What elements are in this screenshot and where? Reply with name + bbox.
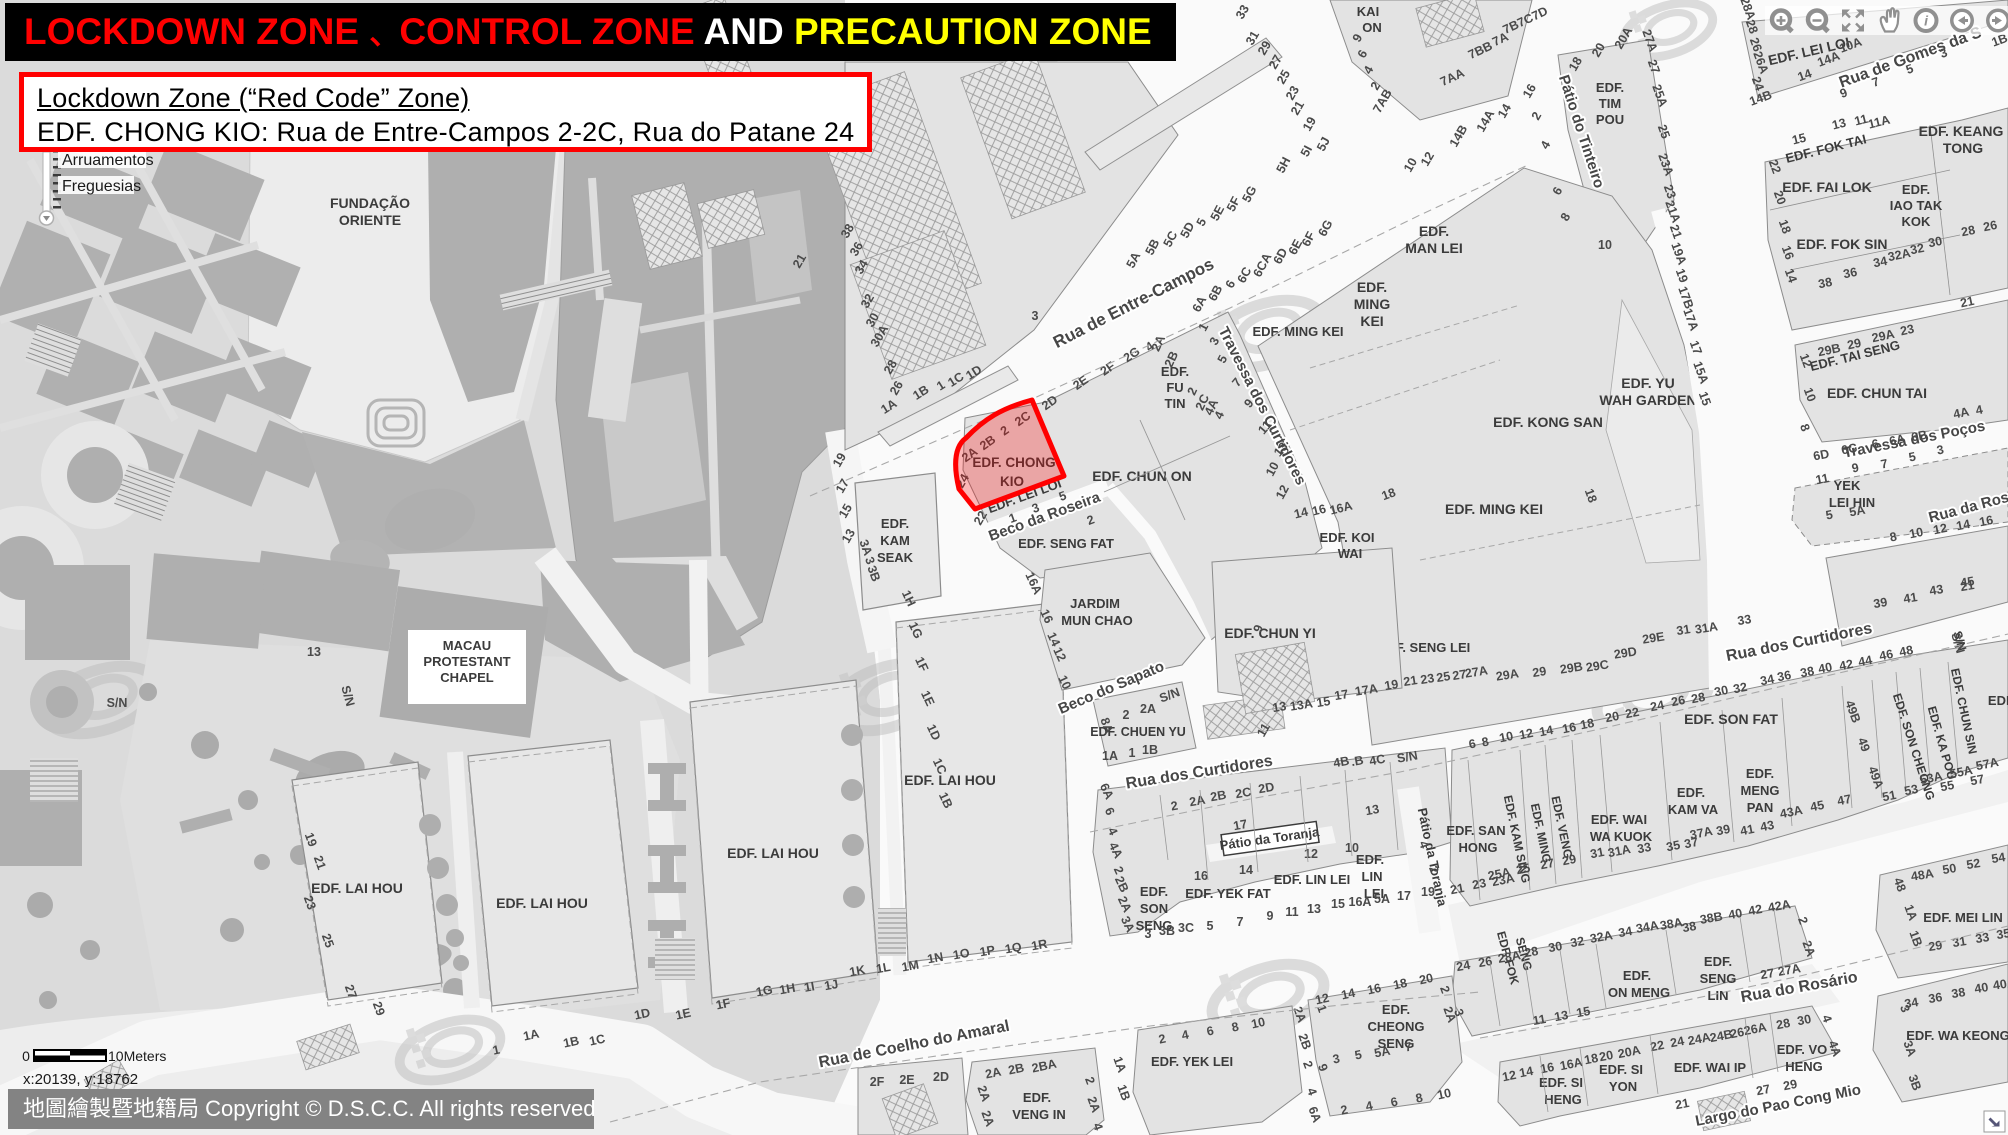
- svg-text:12: 12: [1501, 1068, 1517, 1084]
- svg-text:5: 5: [1207, 919, 1214, 933]
- svg-text:29: 29: [1846, 336, 1863, 353]
- svg-text:41: 41: [1902, 590, 1918, 606]
- svg-text:EDF. MEI LIN: EDF. MEI LIN: [1923, 910, 2002, 925]
- svg-text:10: 10: [1498, 729, 1514, 745]
- svg-text:30: 30: [1796, 1012, 1812, 1028]
- svg-text:2B: 2B: [1209, 788, 1227, 805]
- svg-text:KEI: KEI: [1360, 313, 1383, 329]
- svg-text:TIM: TIM: [1599, 96, 1621, 111]
- svg-text:EDF. KOI: EDF. KOI: [1320, 530, 1375, 545]
- svg-text:1H: 1H: [778, 981, 796, 998]
- svg-text:16: 16: [1561, 720, 1577, 736]
- svg-text:52: 52: [1965, 856, 1981, 872]
- svg-text:YEK: YEK: [1834, 478, 1861, 493]
- svg-text:21: 21: [1449, 881, 1465, 897]
- svg-text:29: 29: [1561, 852, 1577, 868]
- svg-text:30: 30: [1547, 939, 1563, 955]
- svg-text:EDF.: EDF.: [1746, 766, 1774, 781]
- svg-text:14: 14: [1955, 517, 1971, 533]
- svg-text:38: 38: [1681, 919, 1697, 935]
- svg-text:17: 17: [1232, 817, 1248, 833]
- svg-text:19: 19: [1383, 677, 1399, 693]
- svg-text:32: 32: [1732, 680, 1748, 696]
- svg-text:EDF. WA KEONG: EDF. WA KEONG: [1906, 1028, 2008, 1043]
- svg-text:13: 13: [1553, 1008, 1569, 1024]
- svg-text:18: 18: [1579, 716, 1595, 732]
- svg-text:EDF. CHUN YI: EDF. CHUN YI: [1224, 625, 1316, 641]
- svg-text:28: 28: [1690, 690, 1706, 706]
- svg-text:17: 17: [1333, 687, 1349, 703]
- svg-text:24: 24: [1669, 1034, 1685, 1050]
- svg-text:19: 19: [1421, 885, 1435, 899]
- svg-text:EDF. WAI IP: EDF. WAI IP: [1674, 1060, 1747, 1075]
- svg-text:39: 39: [1872, 595, 1888, 611]
- svg-text:EDF. KONG SAN: EDF. KONG SAN: [1493, 414, 1603, 430]
- svg-text:EDF.: EDF.: [1357, 279, 1387, 295]
- svg-text:6D: 6D: [1812, 447, 1830, 464]
- svg-text:14: 14: [1538, 723, 1554, 739]
- svg-text:3C: 3C: [1178, 921, 1194, 935]
- svg-text:ORIENTE: ORIENTE: [339, 212, 401, 228]
- svg-text:PAN: PAN: [1747, 800, 1773, 815]
- svg-text:KAI: KAI: [1357, 4, 1379, 19]
- svg-text:21: 21: [1674, 1096, 1690, 1112]
- svg-text:5A: 5A: [1373, 1044, 1391, 1061]
- svg-text:HENG: HENG: [1544, 1092, 1582, 1107]
- svg-text:EDF. LAI HOU: EDF. LAI HOU: [727, 845, 819, 861]
- svg-text:27: 27: [1759, 966, 1775, 982]
- svg-text:12: 12: [1304, 847, 1318, 861]
- svg-text:1M: 1M: [901, 958, 921, 975]
- svg-text:MENG: MENG: [1741, 783, 1780, 798]
- svg-text:EDF. CHUN TAI: EDF. CHUN TAI: [1827, 385, 1927, 401]
- svg-text:16: 16: [1366, 981, 1383, 998]
- svg-text:6B: 6B: [1910, 428, 1928, 445]
- svg-text:35: 35: [1665, 838, 1681, 854]
- svg-text:36: 36: [1842, 265, 1858, 281]
- svg-text:12: 12: [1518, 726, 1534, 742]
- svg-text:14: 14: [1340, 986, 1357, 1003]
- svg-text:EDF. KEANG: EDF. KEANG: [1919, 123, 2004, 139]
- svg-text:4B: 4B: [1332, 754, 1350, 771]
- svg-text:34: 34: [1759, 672, 1775, 688]
- svg-text:Freguesias: Freguesias: [62, 178, 141, 195]
- svg-text:54: 54: [1990, 850, 2006, 866]
- svg-text:23: 23: [1899, 322, 1916, 339]
- svg-text:EDF. FOK SIN: EDF. FOK SIN: [1796, 236, 1887, 252]
- svg-text:2D: 2D: [933, 1070, 949, 1084]
- svg-text:Arruamentos: Arruamentos: [62, 152, 154, 169]
- svg-text:1J: 1J: [823, 977, 839, 993]
- svg-text:JARDIM: JARDIM: [1070, 596, 1120, 611]
- svg-text:EDF. YEK LEI: EDF. YEK LEI: [1151, 1054, 1233, 1069]
- svg-text:.B: .B: [1350, 753, 1365, 769]
- svg-text:11: 11: [1532, 1012, 1547, 1028]
- svg-text:38: 38: [1950, 985, 1966, 1001]
- svg-text:CHEONG: CHEONG: [1367, 1019, 1424, 1034]
- svg-text:45: 45: [1809, 798, 1825, 814]
- svg-text:27: 27: [1539, 856, 1555, 872]
- svg-text:32: 32: [1909, 241, 1925, 257]
- svg-text:27: 27: [1755, 1082, 1771, 1098]
- svg-text:2D: 2D: [1257, 780, 1275, 797]
- svg-text:EDF. SENG FAT: EDF. SENG FAT: [1018, 536, 1114, 551]
- svg-text:30: 30: [1927, 234, 1943, 250]
- svg-text:10Meters: 10Meters: [108, 1048, 166, 1064]
- svg-text:EDF.: EDF.: [1140, 884, 1168, 899]
- svg-text:40: 40: [1817, 660, 1833, 676]
- svg-text:POU: POU: [1596, 112, 1624, 127]
- svg-text:VENG IN: VENG IN: [1012, 1107, 1065, 1122]
- svg-text:16: 16: [1978, 513, 1994, 529]
- svg-text:WAI: WAI: [1338, 546, 1363, 561]
- svg-text:31: 31: [1589, 845, 1605, 861]
- svg-text:IAO TAK: IAO TAK: [1890, 198, 1943, 213]
- svg-text:MACAU: MACAU: [443, 638, 491, 653]
- svg-text:50: 50: [1941, 861, 1957, 877]
- svg-text:10: 10: [1598, 238, 1612, 252]
- svg-text:16: 16: [1194, 869, 1208, 883]
- svg-text:28: 28: [1775, 1016, 1791, 1032]
- svg-text:4C: 4C: [1368, 752, 1386, 769]
- svg-text:2A: 2A: [1140, 702, 1156, 716]
- svg-text:7: 7: [1237, 915, 1244, 929]
- svg-text:EDF. SI: EDF. SI: [1539, 1075, 1583, 1090]
- svg-text:TONG: TONG: [1943, 140, 1983, 156]
- svg-text:24: 24: [1455, 958, 1471, 974]
- svg-text:38: 38: [1817, 275, 1833, 291]
- svg-text:EDF.: EDF.: [1596, 80, 1624, 95]
- svg-text:EDF. LAI HOU: EDF. LAI HOU: [496, 895, 588, 911]
- svg-text:1R: 1R: [1030, 937, 1048, 954]
- svg-text:EDF.: EDF.: [1356, 852, 1384, 867]
- svg-text:47: 47: [1836, 792, 1852, 808]
- svg-text:51: 51: [1881, 788, 1897, 804]
- svg-text:34: 34: [1872, 254, 1888, 270]
- svg-text:34: 34: [1617, 924, 1633, 940]
- svg-text:HONG: HONG: [1459, 840, 1498, 855]
- svg-text:1P: 1P: [979, 943, 996, 959]
- svg-text:EDF. LAI HOU: EDF. LAI HOU: [904, 772, 996, 788]
- svg-text:10: 10: [1250, 1015, 1267, 1032]
- svg-text:2F: 2F: [870, 1075, 885, 1089]
- svg-text:39: 39: [1715, 822, 1731, 838]
- svg-text:EDF.: EDF.: [1623, 968, 1651, 983]
- svg-text:26: 26: [1982, 218, 1998, 234]
- svg-text:SON: SON: [1140, 901, 1168, 916]
- svg-text:EDF. SON FAT: EDF. SON FAT: [1684, 711, 1778, 727]
- svg-text:14: 14: [1239, 863, 1253, 877]
- svg-text:EDF.: EDF.: [1704, 954, 1732, 969]
- svg-text:1O: 1O: [952, 946, 971, 963]
- svg-text:38: 38: [1799, 664, 1815, 680]
- svg-text:EDF.: EDF.: [1902, 182, 1930, 197]
- svg-text:1G: 1G: [755, 983, 774, 1000]
- svg-text:5A: 5A: [1374, 892, 1390, 906]
- svg-text:S/N: S/N: [107, 696, 128, 710]
- svg-text:TIN: TIN: [1165, 396, 1186, 411]
- svg-text:41: 41: [1739, 822, 1755, 838]
- svg-text:40: 40: [1727, 906, 1743, 922]
- svg-text:3B: 3B: [1159, 924, 1175, 938]
- svg-text:28: 28: [1523, 944, 1539, 960]
- svg-text:PROTESTANT: PROTESTANT: [423, 654, 510, 669]
- svg-text:1N: 1N: [926, 950, 944, 967]
- svg-text:2E: 2E: [899, 1073, 914, 1087]
- svg-text:45: 45: [1959, 574, 1975, 590]
- svg-text:21: 21: [1959, 294, 1976, 311]
- svg-text:25: 25: [1435, 669, 1451, 685]
- svg-text:EDF.: EDF.: [1382, 1002, 1410, 1017]
- svg-text:24: 24: [1649, 698, 1665, 714]
- svg-text:1K: 1K: [848, 963, 866, 980]
- svg-text:1L: 1L: [875, 960, 892, 976]
- svg-text:30: 30: [1713, 683, 1729, 699]
- svg-text:EDF. VO: EDF. VO: [1777, 1042, 1828, 1057]
- svg-text:36: 36: [1776, 668, 1792, 684]
- svg-text:WAH GARDEN: WAH GARDEN: [1599, 392, 1696, 408]
- svg-text:21: 21: [1402, 673, 1418, 689]
- svg-text:EDF.: EDF.: [1419, 223, 1449, 239]
- svg-text:36: 36: [1927, 990, 1943, 1006]
- svg-text:SENG: SENG: [1700, 971, 1737, 986]
- svg-text:2A: 2A: [1188, 793, 1206, 810]
- svg-text:11: 11: [1285, 905, 1298, 919]
- svg-text:EDF. CHUN ON: EDF. CHUN ON: [1092, 468, 1192, 484]
- svg-text:42: 42: [1747, 902, 1763, 918]
- svg-text:37: 37: [1683, 835, 1699, 851]
- svg-text:CHAPEL: CHAPEL: [440, 670, 494, 685]
- svg-text:17: 17: [1397, 889, 1411, 903]
- svg-text:EDF.: EDF.: [1988, 693, 2008, 708]
- svg-text:29: 29: [1782, 1077, 1798, 1093]
- svg-text:44: 44: [1857, 653, 1873, 669]
- svg-text:0: 0: [22, 1048, 30, 1064]
- svg-text:53: 53: [1903, 782, 1919, 798]
- svg-text:33: 33: [1736, 612, 1752, 628]
- svg-text:6A: 6A: [1888, 432, 1906, 449]
- svg-text:43: 43: [1759, 818, 1775, 834]
- svg-text:EDF.: EDF.: [1677, 785, 1705, 800]
- svg-text:12: 12: [1932, 521, 1948, 537]
- svg-text:29: 29: [1927, 938, 1943, 954]
- svg-text:23: 23: [1419, 671, 1435, 687]
- svg-text:EDF. LAI HOU: EDF. LAI HOU: [311, 880, 403, 896]
- svg-text:EDF. SAN: EDF. SAN: [1446, 823, 1505, 838]
- svg-text:EDF. MING KEI: EDF. MING KEI: [1445, 501, 1543, 517]
- svg-text:5A: 5A: [1848, 503, 1866, 520]
- svg-text:13: 13: [307, 645, 321, 659]
- svg-text:FU: FU: [1166, 380, 1183, 395]
- svg-text:MING: MING: [1354, 296, 1391, 312]
- svg-text:48: 48: [1898, 643, 1914, 659]
- svg-text:22: 22: [1624, 705, 1640, 721]
- svg-text:EDF. MING KEI: EDF. MING KEI: [1252, 324, 1343, 339]
- svg-text:HENG: HENG: [1785, 1059, 1823, 1074]
- svg-text:43: 43: [1928, 582, 1944, 598]
- svg-text:18: 18: [1392, 976, 1409, 993]
- svg-text:2: 2: [1123, 708, 1130, 722]
- svg-text:LIN: LIN: [1362, 869, 1383, 884]
- svg-text:32: 32: [1569, 934, 1585, 950]
- svg-text:13: 13: [1364, 802, 1380, 818]
- svg-text:25: 25: [1515, 861, 1531, 877]
- svg-text:26: 26: [1670, 693, 1686, 709]
- svg-text:MUN CHAO: MUN CHAO: [1061, 613, 1133, 628]
- svg-text:3: 3: [1032, 309, 1039, 323]
- svg-text:6C: 6C: [1840, 441, 1858, 458]
- svg-text:KAM: KAM: [880, 533, 910, 548]
- svg-text:EDF. SI: EDF. SI: [1599, 1062, 1643, 1077]
- svg-text:10: 10: [1436, 1086, 1453, 1103]
- svg-text:1B: 1B: [1142, 743, 1158, 757]
- svg-text:ON MENG: ON MENG: [1608, 985, 1670, 1000]
- svg-text:15: 15: [1575, 1004, 1591, 1020]
- svg-text:EDF.: EDF.: [881, 516, 909, 531]
- svg-text:3: 3: [1145, 927, 1152, 941]
- svg-text:ON: ON: [1362, 20, 1382, 35]
- svg-text:KAM VA: KAM VA: [1668, 802, 1719, 817]
- svg-text:14: 14: [1518, 1064, 1534, 1080]
- svg-text:15: 15: [1315, 694, 1331, 710]
- svg-text:13: 13: [1307, 902, 1321, 916]
- svg-text:16A: 16A: [1349, 895, 1372, 909]
- svg-text:1A: 1A: [1102, 749, 1118, 763]
- svg-text:MAN LEI: MAN LEI: [1405, 240, 1463, 256]
- svg-text:EDF. LIN LEI: EDF. LIN LEI: [1274, 872, 1351, 887]
- svg-text:40: 40: [1973, 980, 1989, 996]
- svg-text:11: 11: [1814, 471, 1830, 487]
- svg-text:40A: 40A: [1992, 975, 2008, 992]
- svg-text:20: 20: [1598, 1048, 1614, 1064]
- svg-text:20: 20: [1418, 971, 1435, 988]
- svg-text:YON: YON: [1609, 1079, 1637, 1094]
- svg-text:10: 10: [1908, 525, 1924, 541]
- svg-text:18: 18: [1583, 1051, 1599, 1067]
- svg-text:EDF. YU: EDF. YU: [1621, 375, 1674, 391]
- svg-text:EDF. FAI LOK: EDF. FAI LOK: [1782, 179, 1871, 195]
- svg-text:EDF. WAI: EDF. WAI: [1591, 812, 1647, 827]
- svg-text:31: 31: [1675, 622, 1691, 638]
- svg-text:35: 35: [1995, 926, 2008, 942]
- svg-text:EDF.: EDF.: [1023, 1090, 1051, 1105]
- svg-text:33: 33: [1636, 840, 1652, 856]
- svg-text:15: 15: [1331, 897, 1345, 911]
- svg-text:28: 28: [1960, 223, 1976, 239]
- svg-text:20: 20: [1604, 709, 1620, 725]
- svg-text:EDF. YEK FAT: EDF. YEK FAT: [1185, 886, 1271, 901]
- svg-text:57: 57: [1969, 772, 1985, 788]
- svg-text:9: 9: [1267, 909, 1274, 923]
- svg-text:KOK: KOK: [1902, 214, 1932, 229]
- svg-text:SEAK: SEAK: [877, 550, 914, 565]
- svg-text:29: 29: [1531, 664, 1547, 680]
- svg-text:x:20139, y:18762: x:20139, y:18762: [23, 1071, 138, 1088]
- svg-text:23: 23: [1471, 876, 1487, 892]
- svg-text:1Q: 1Q: [1004, 940, 1023, 957]
- svg-text:1: 1: [1129, 746, 1136, 760]
- svg-text:13: 13: [1271, 699, 1287, 715]
- svg-text:FUNDAÇÃO: FUNDAÇÃO: [330, 194, 410, 211]
